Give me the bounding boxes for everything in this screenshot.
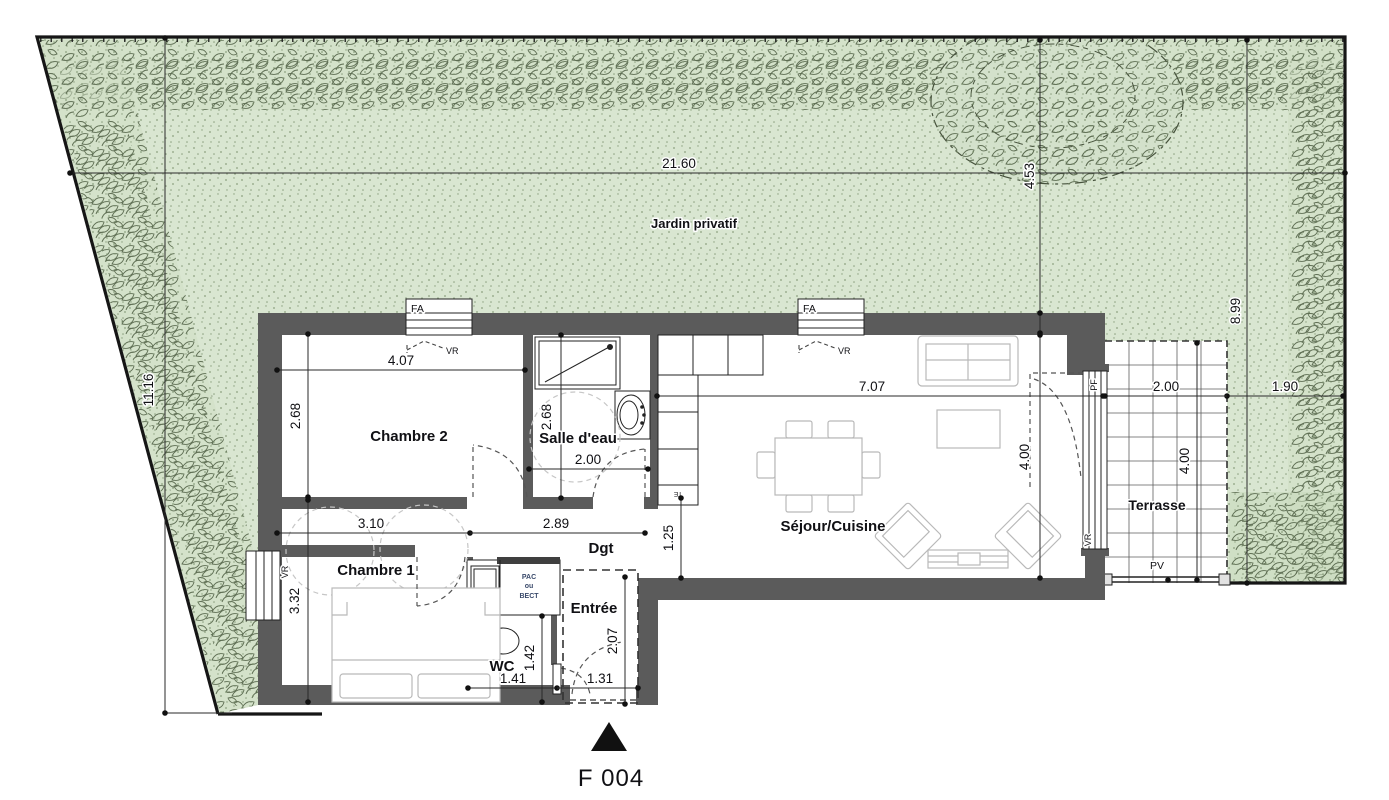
pac-label-line2: ou: [525, 583, 534, 590]
svg-text:1.42: 1.42: [522, 645, 537, 671]
svg-text:1.31: 1.31: [587, 671, 613, 686]
floor-plan-page: PV: [0, 0, 1389, 800]
svg-text:3.10: 3.10: [358, 516, 384, 531]
dim-salle-deau-width: 2.00: [526, 452, 651, 472]
floor-plan-svg: PV: [0, 0, 1389, 800]
vr-tag: VR: [1083, 533, 1093, 546]
svg-text:1.25: 1.25: [661, 525, 676, 551]
pf-tag: PF: [1089, 379, 1099, 391]
label-sejour: Séjour/Cuisine: [780, 518, 885, 535]
label-entree: Entrée: [571, 600, 618, 617]
label-wc: WC: [490, 658, 515, 675]
svg-text:3.32: 3.32: [287, 588, 302, 614]
terrace-pv-tag: PV: [1150, 560, 1164, 572]
terrace: PV: [1101, 341, 1230, 585]
label-terrasse: Terrasse: [1128, 497, 1186, 513]
washbasin: [615, 391, 650, 439]
svg-text:2.00: 2.00: [575, 452, 601, 467]
svg-text:2.68: 2.68: [539, 404, 554, 430]
label-chambre1: Chambre 1: [337, 562, 415, 579]
label-chambre2: Chambre 2: [370, 428, 448, 445]
svg-text:21.60: 21.60: [662, 156, 696, 171]
svg-text:4.53: 4.53: [1022, 163, 1037, 189]
dim-dgt-right: 2.89: [470, 516, 648, 536]
dim-entree-depth: 2.07: [605, 574, 628, 707]
svg-text:2.00: 2.00: [1153, 379, 1179, 394]
svg-text:2.07: 2.07: [605, 628, 620, 654]
coffee-table: [937, 410, 1000, 448]
svg-text:11.16: 11.16: [141, 374, 156, 407]
svg-text:4.00: 4.00: [1017, 444, 1032, 470]
plan-title: F 004: [578, 765, 644, 792]
dim-dgt-passage: 1.25: [661, 495, 684, 581]
svg-text:4.00: 4.00: [1177, 448, 1192, 474]
kitchen-counter: [658, 335, 763, 505]
dim-dgt-left: 3.10: [274, 516, 473, 536]
svg-text:2.89: 2.89: [543, 516, 569, 531]
svg-text:2.68: 2.68: [288, 403, 303, 429]
entrance-marker: F 004: [578, 722, 644, 792]
window-fa-sejour: FA VR: [798, 299, 864, 356]
bay-door-swing: [1030, 373, 1083, 490]
bed-chambre1: [332, 588, 500, 702]
svg-text:8.99: 8.99: [1228, 298, 1243, 324]
fa-tag: FA: [803, 303, 816, 315]
sofa: [918, 336, 1018, 386]
entrance-arrow-icon: [591, 722, 627, 751]
window-chambre1: VR: [246, 551, 290, 620]
svg-text:7.07: 7.07: [859, 379, 885, 394]
label-jardin: Jardin privatif: [651, 216, 738, 231]
dining-table: [757, 421, 880, 512]
label-salle-deau: Salle d'eau: [539, 430, 617, 447]
dim-chambre2-width: 4.07: [274, 353, 528, 373]
dim-chambre1-depth: 3.32: [287, 497, 311, 705]
shower: [535, 337, 620, 389]
pac-label-line1: PAC: [522, 574, 536, 581]
pac-label-line3: BECT: [519, 593, 539, 600]
svg-text:4.07: 4.07: [388, 353, 414, 368]
dim-sejour-width: 7.07: [654, 379, 1106, 399]
tv-bench: [928, 550, 1008, 568]
svg-text:1.90: 1.90: [1272, 379, 1298, 394]
window-fa-chambre2: FA VR: [406, 299, 472, 356]
label-dgt: Dgt: [589, 540, 614, 557]
door-chambre2: [473, 445, 527, 497]
vr-tag: VR: [838, 346, 851, 356]
vr-tag: VR: [446, 346, 459, 356]
dim-chambre2-depth: 2.68: [288, 331, 311, 500]
dim-entree-width: 1.31: [557, 671, 641, 691]
fa-tag: FA: [411, 303, 424, 315]
